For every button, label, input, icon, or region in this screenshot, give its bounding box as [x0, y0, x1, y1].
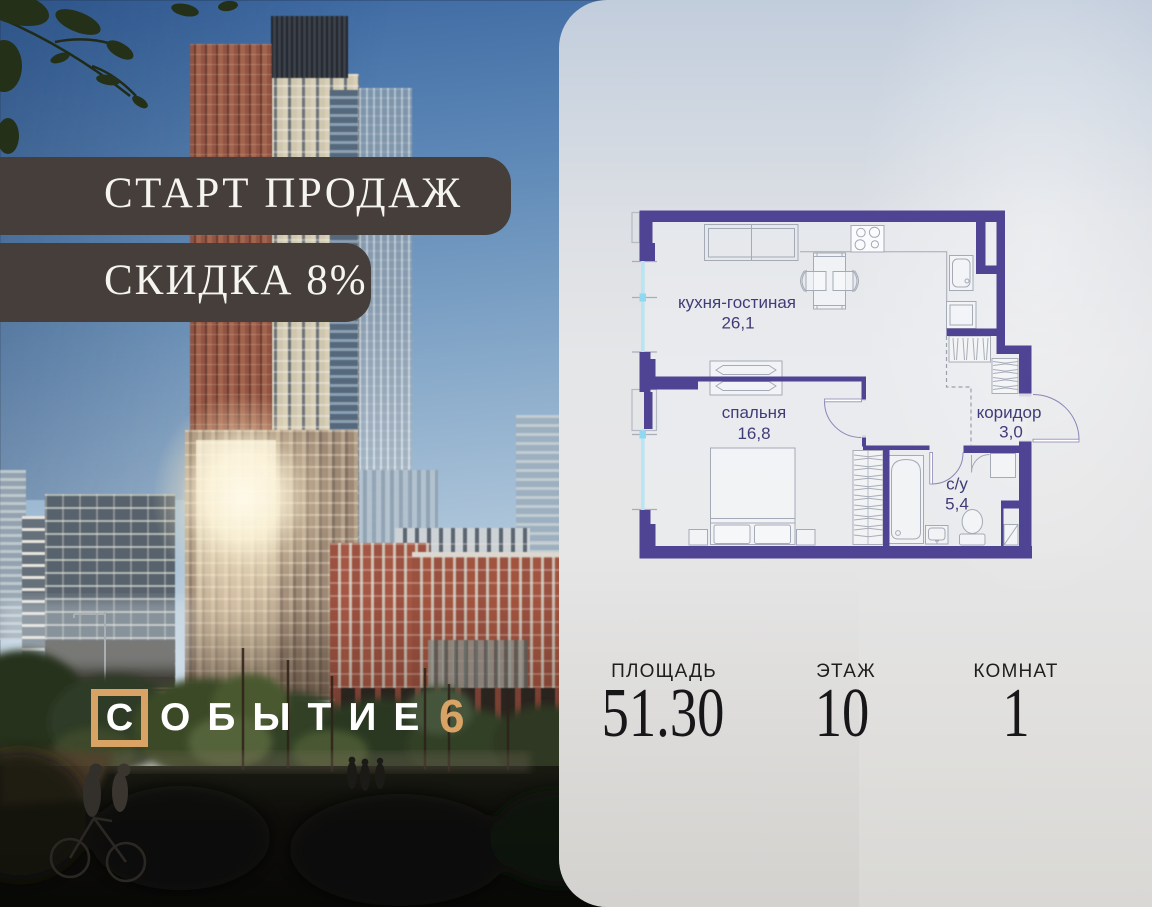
- svg-text:коридор: коридор: [977, 403, 1042, 422]
- svg-text:5,4: 5,4: [945, 495, 969, 514]
- svg-text:3,0: 3,0: [999, 423, 1023, 442]
- svg-text:спальня: спальня: [722, 403, 787, 422]
- svg-text:кухня-гостиная: кухня-гостиная: [678, 293, 796, 312]
- svg-text:с/у: с/у: [946, 475, 968, 494]
- svg-text:16,8: 16,8: [737, 424, 770, 443]
- svg-text:26,1: 26,1: [721, 314, 754, 333]
